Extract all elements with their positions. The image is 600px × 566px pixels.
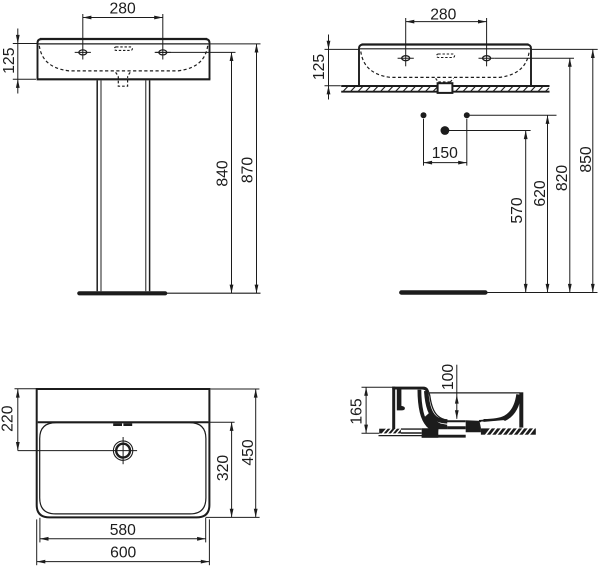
svg-text:450: 450: [240, 439, 257, 466]
svg-text:840: 840: [214, 160, 231, 187]
svg-text:820: 820: [554, 165, 571, 192]
svg-text:125: 125: [1, 47, 18, 74]
svg-text:165: 165: [348, 398, 365, 425]
svg-text:280: 280: [430, 6, 456, 23]
svg-text:220: 220: [0, 405, 17, 432]
svg-text:320: 320: [215, 455, 232, 482]
svg-text:600: 600: [110, 545, 136, 562]
svg-text:580: 580: [110, 522, 136, 539]
svg-text:125: 125: [311, 54, 328, 81]
svg-text:100: 100: [440, 364, 457, 391]
svg-text:850: 850: [578, 146, 595, 173]
svg-text:280: 280: [110, 0, 136, 17]
svg-text:870: 870: [240, 157, 257, 184]
svg-text:150: 150: [432, 145, 458, 162]
svg-text:620: 620: [532, 180, 549, 207]
svg-text:570: 570: [509, 197, 526, 224]
